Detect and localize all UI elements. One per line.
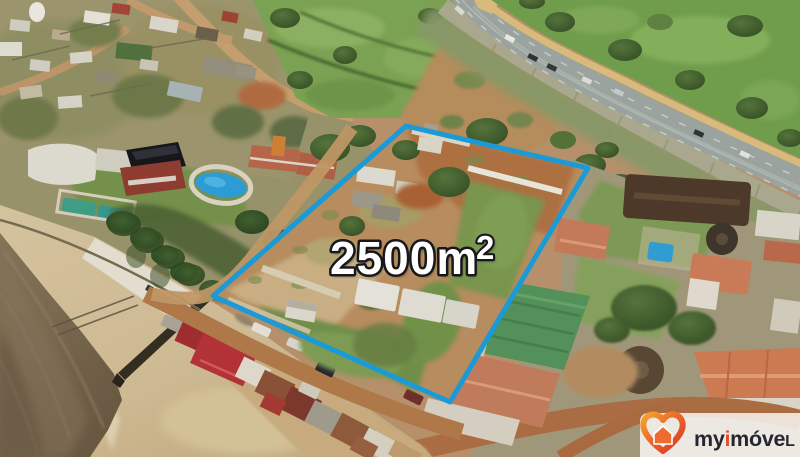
svg-text:2: 2 [476, 229, 494, 266]
svg-text:myimóveL: myimóveL [694, 427, 795, 451]
svg-text:2500m: 2500m [330, 232, 478, 284]
